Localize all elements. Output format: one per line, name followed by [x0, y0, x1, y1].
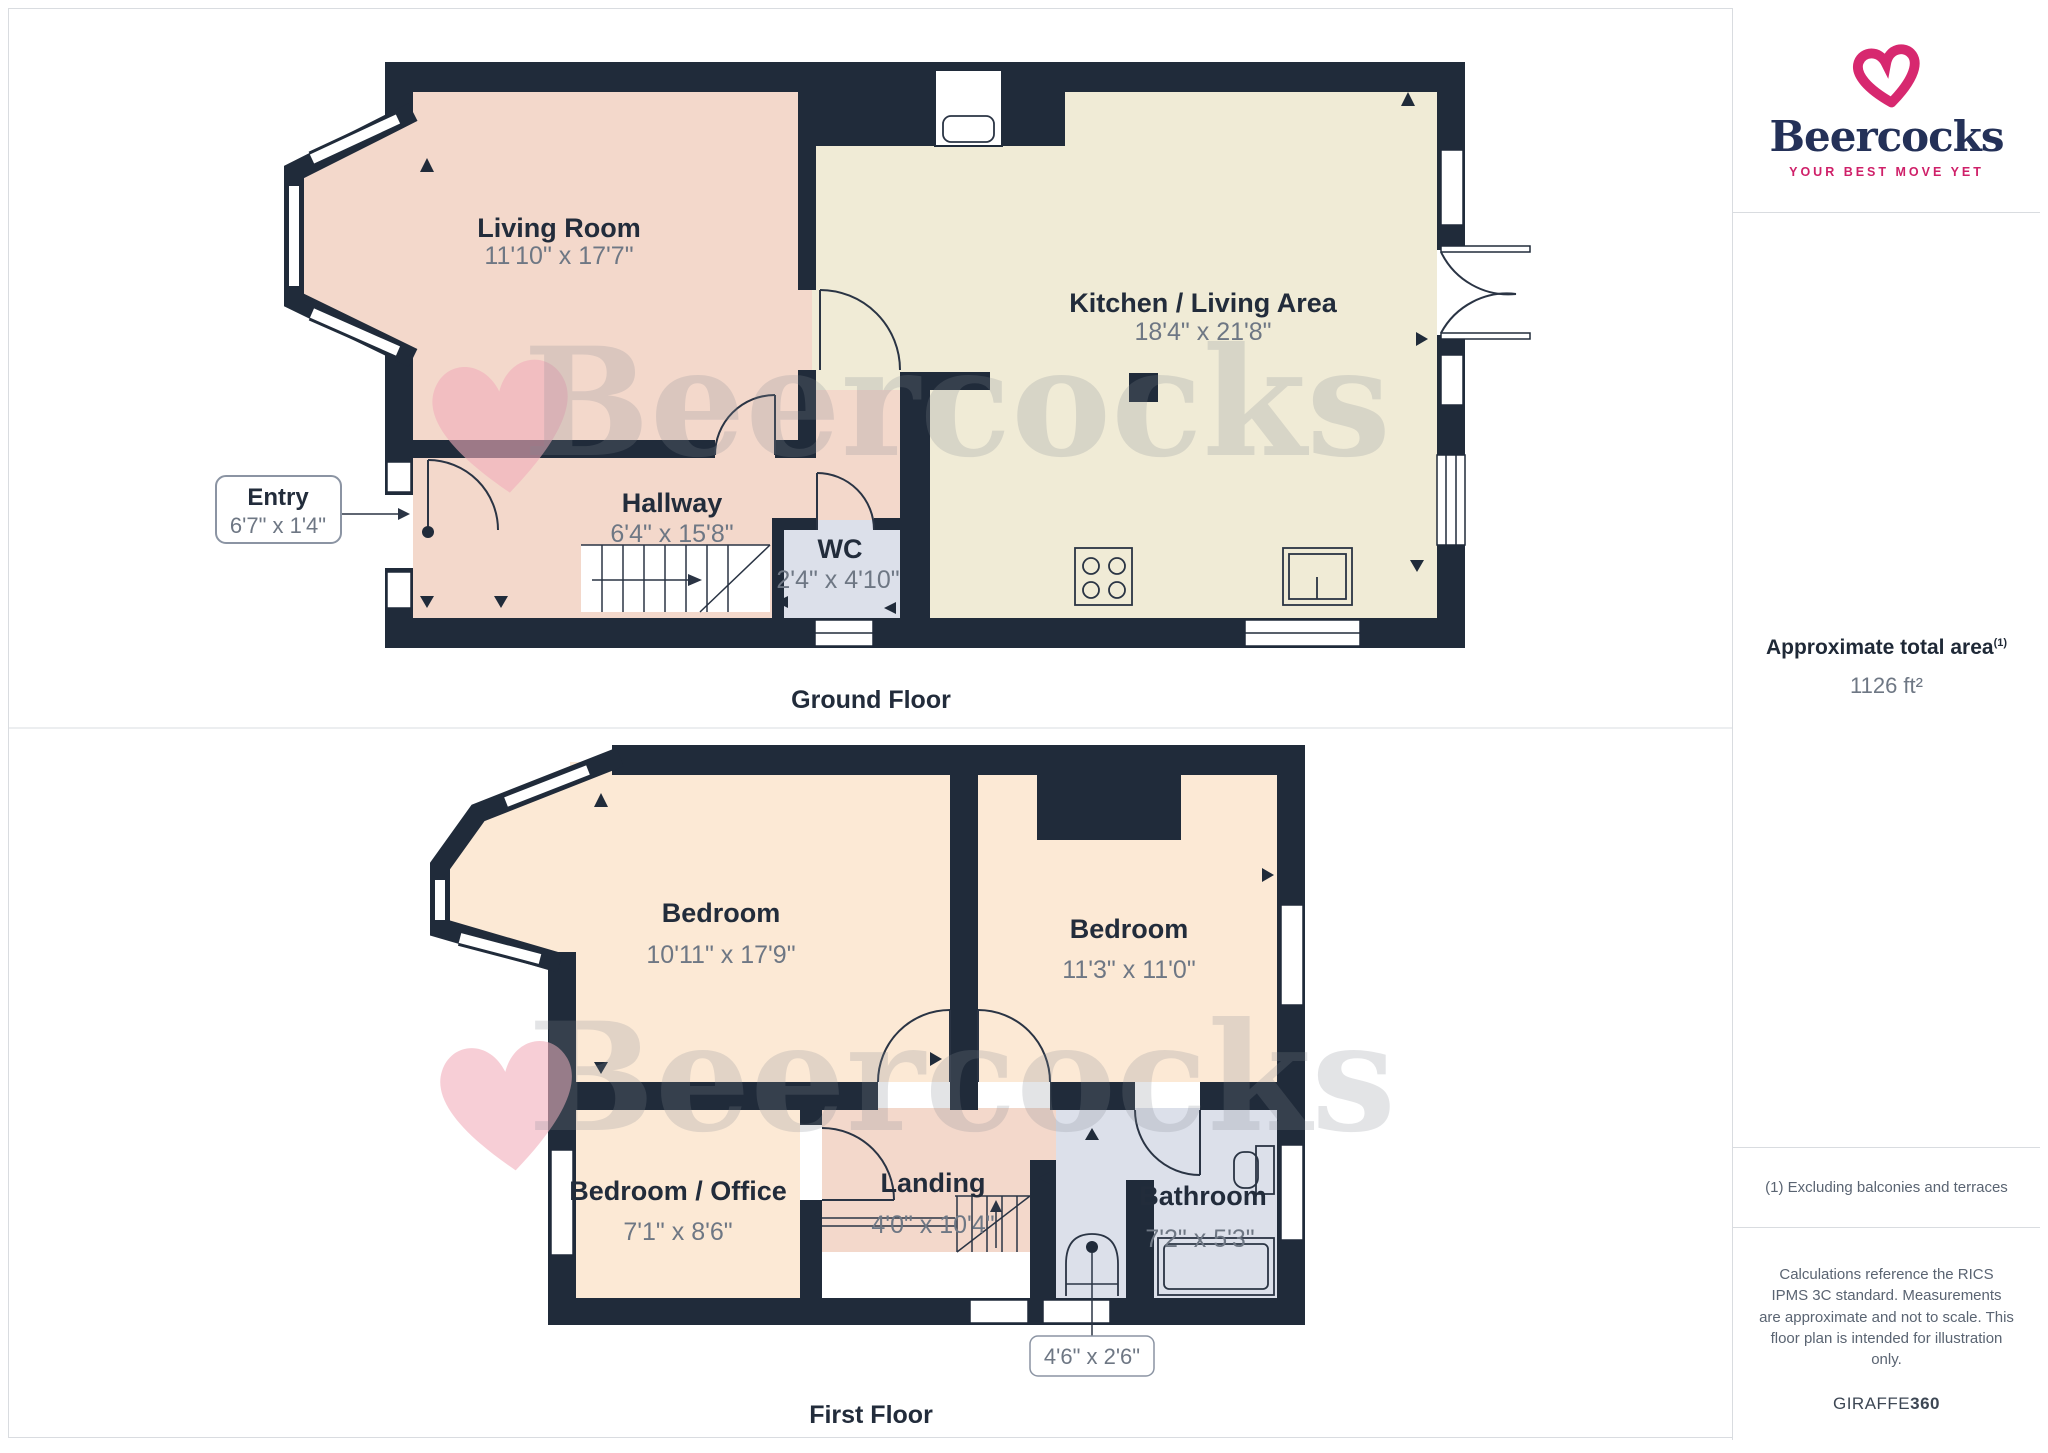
bedroom-office-dims: 7'1" x 8'6": [623, 1218, 732, 1246]
bedroom2-dims: 11'3" x 11'0": [1062, 956, 1195, 984]
bedroom1-label: Bedroom: [662, 898, 781, 928]
entry-dims: 6'7" x 1'4": [230, 513, 326, 538]
hallway-label: Hallway: [622, 488, 723, 518]
ground-floor-caption: Ground Floor: [791, 686, 951, 714]
chimney-breast: [1037, 775, 1181, 840]
entry-callout: Entry 6'7" x 1'4": [216, 476, 410, 543]
living-room-label: Living Room: [477, 213, 641, 243]
landing-dims: 4'0" x 10'4": [871, 1211, 994, 1239]
entry-label: Entry: [247, 484, 309, 511]
bedroom2-label: Bedroom: [1070, 914, 1189, 944]
watermark-text-ground: Beercocks: [523, 315, 1391, 491]
floorplan-panel: Living Room 11'10" x 17'7" Kitchen / Liv…: [0, 0, 1732, 1448]
brand-logo: Beercocks YOUR BEST MOVE YET: [1733, 8, 2040, 213]
giraffe360-credit: GIRAFFE360: [1759, 1392, 2014, 1416]
brand-heart-icon: [1837, 32, 1937, 114]
chimney-alcove: [935, 70, 1002, 146]
watermark-text-first: Beercocks: [528, 990, 1396, 1166]
total-area-value: 1126 ft²: [1733, 673, 2040, 699]
bedroom1-dims: 10'11" x 17'9": [646, 941, 795, 969]
total-area-title-text: Approximate total area: [1766, 636, 1994, 659]
landing-label: Landing: [881, 1168, 986, 1198]
french-doors: [1437, 246, 1530, 339]
living-room-dims: 11'10" x 17'7": [484, 242, 633, 270]
giraffe360-bold: 360: [1910, 1394, 1940, 1413]
kitchen-label: Kitchen / Living Area: [1069, 288, 1338, 318]
total-area-footnote-ref: (1): [1994, 637, 2007, 649]
total-area-section: Approximate total area(1) 1126 ft²: [1733, 213, 2040, 1148]
brand-tagline: YOUR BEST MOVE YET: [1789, 165, 1984, 179]
sidebar: Beercocks YOUR BEST MOVE YET Approximate…: [1732, 8, 2040, 1440]
disclaimer-text: Calculations reference the RICS IPMS 3C …: [1759, 1264, 2014, 1370]
cupboard-dims: 4'6" x 2'6": [1044, 1344, 1140, 1369]
stairwell-void: [822, 1252, 1030, 1298]
brand-name: Beercocks: [1770, 116, 2004, 158]
entry-hinge-dot: [422, 526, 434, 538]
total-area-title: Approximate total area(1): [1733, 636, 2040, 660]
bathroom-label: Bathroom: [1139, 1181, 1267, 1211]
first-floor-caption: First Floor: [809, 1401, 933, 1429]
giraffe360-regular: GIRAFFE: [1833, 1394, 1910, 1413]
wc-label: WC: [818, 534, 863, 564]
footnote-section: (1) Excluding balconies and terraces: [1733, 1148, 2040, 1228]
bathroom-dims: 7'2" x 5'3": [1145, 1225, 1254, 1253]
bedroom-office-label: Bedroom / Office: [569, 1176, 787, 1206]
hallway-dims: 6'4" x 15'8": [610, 520, 733, 548]
wc-dims: 2'4" x 4'10": [776, 566, 899, 594]
footnote-text: (1) Excluding balconies and terraces: [1765, 1179, 2008, 1196]
disclaimer-section: Calculations reference the RICS IPMS 3C …: [1733, 1228, 2040, 1417]
cupboard-callout: 4'6" x 2'6": [1030, 1336, 1154, 1376]
ground-staircase: [581, 545, 770, 612]
